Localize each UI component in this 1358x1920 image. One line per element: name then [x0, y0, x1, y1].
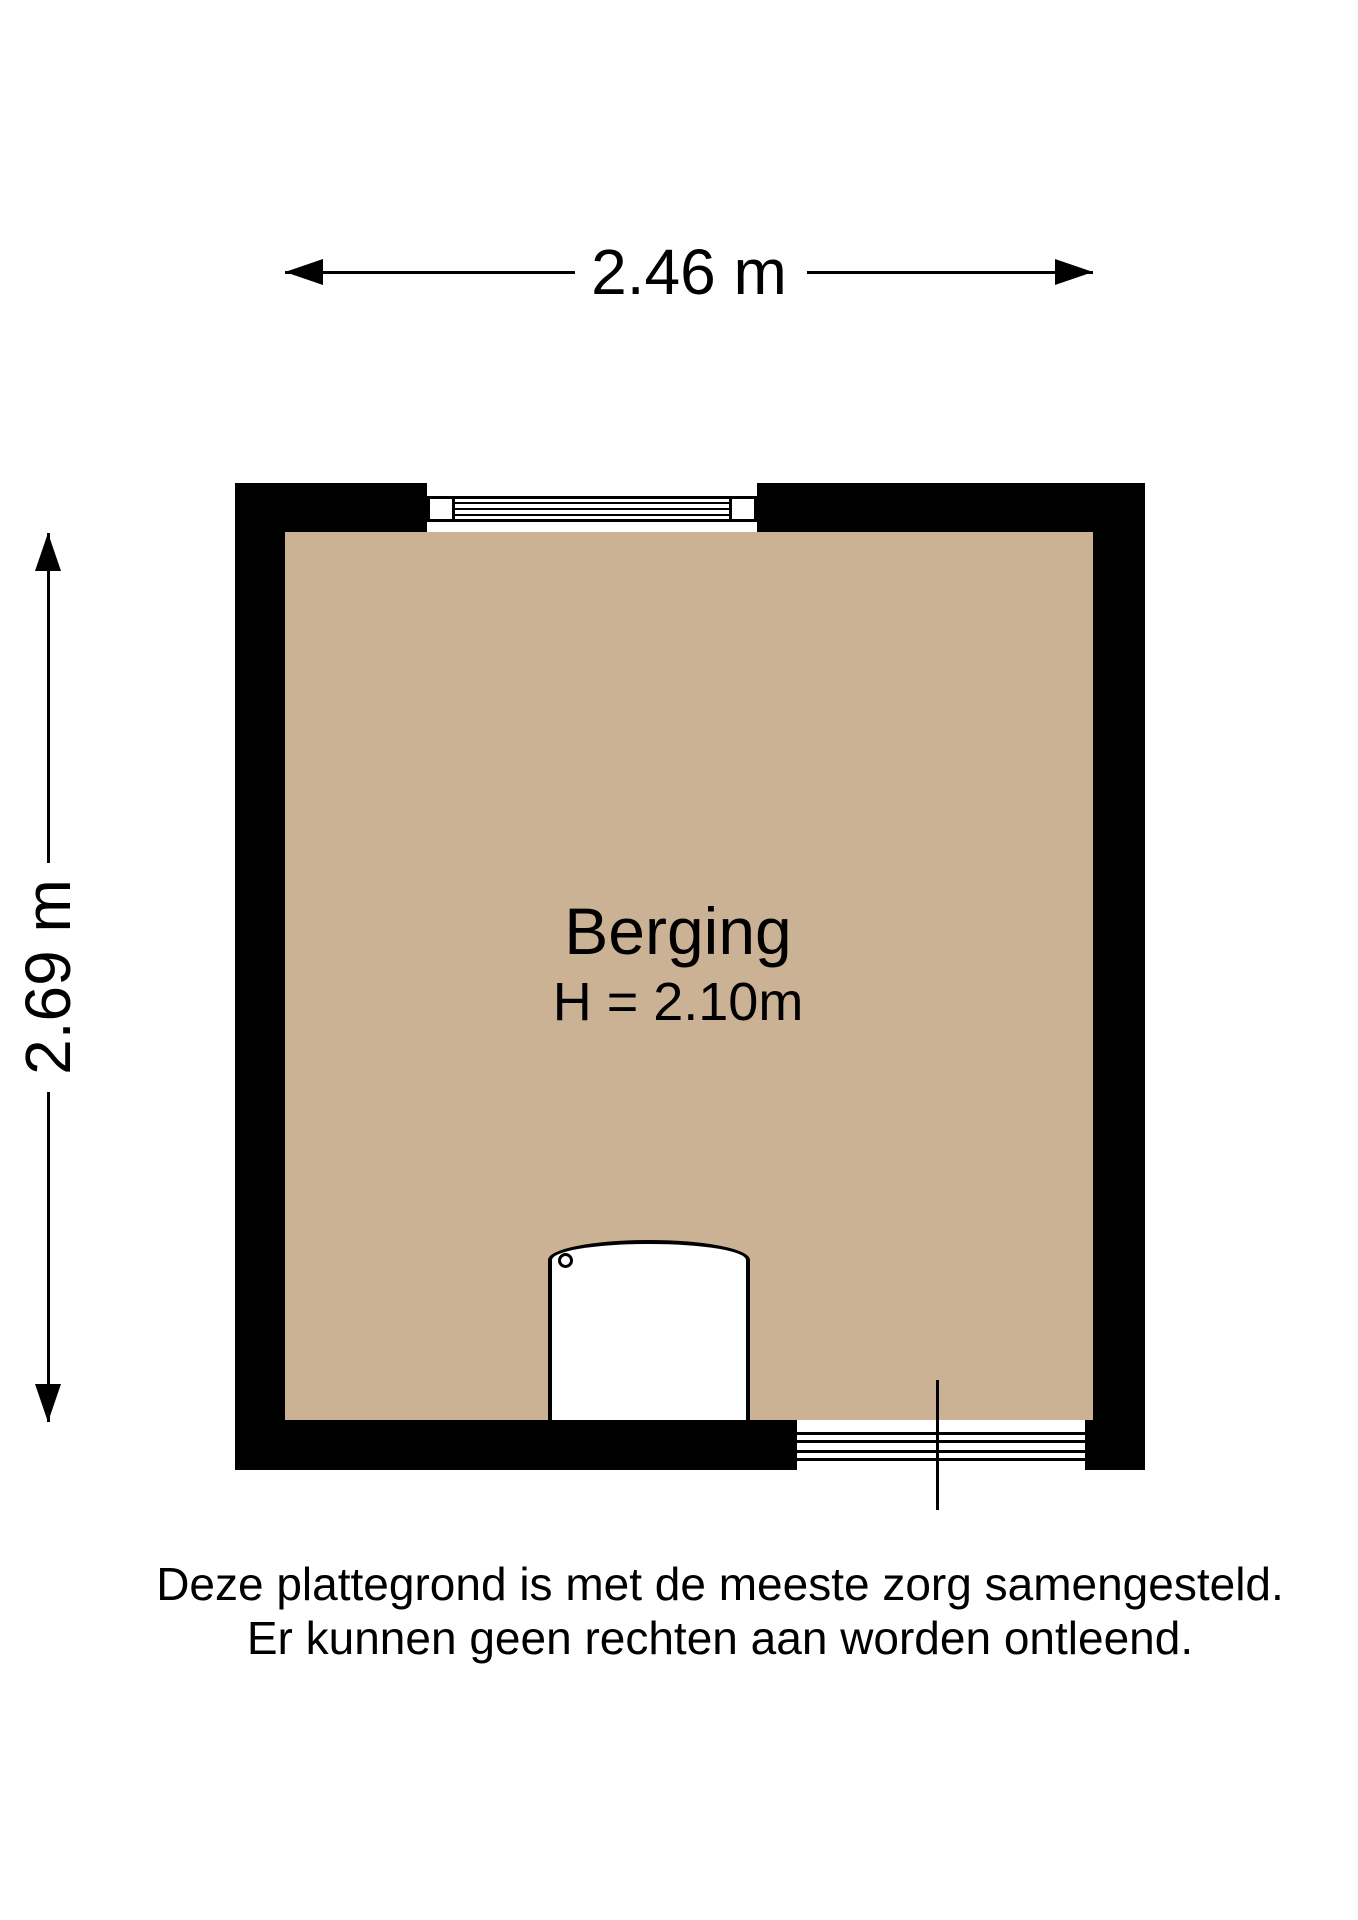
- door-icon: [936, 1380, 939, 1510]
- window-glass-line: [455, 502, 729, 504]
- boiler-icon: [548, 1240, 750, 1420]
- boiler-knob-icon: [558, 1253, 573, 1268]
- disclaimer-line1: Deze plattegrond is met de meeste zorg s…: [95, 1557, 1345, 1611]
- door-threshold-line: [797, 1450, 1085, 1453]
- door-threshold-line: [797, 1440, 1085, 1443]
- height-dimension-line: [47, 1092, 50, 1422]
- disclaimer-line2: Er kunnen geen rechten aan worden ontlee…: [95, 1611, 1345, 1665]
- room-label-block: Berging H = 2.10m: [478, 893, 878, 1035]
- door-threshold-line: [797, 1458, 1085, 1461]
- window-glass-line: [455, 514, 729, 516]
- height-dimension-label: 2.69 m: [13, 879, 83, 1075]
- height-dimension-line: [47, 533, 50, 863]
- window-mullion: [452, 496, 455, 522]
- room-ceiling-height: H = 2.10m: [478, 969, 878, 1035]
- width-dimension-label: 2.46 m: [539, 237, 839, 307]
- disclaimer: Deze plattegrond is met de meeste zorg s…: [95, 1557, 1345, 1665]
- window-mullion: [729, 496, 732, 522]
- door-threshold-line: [797, 1432, 1085, 1435]
- arrow-down-icon: [35, 1384, 61, 1422]
- window-glass-line: [455, 508, 729, 510]
- width-dimension-line: [807, 271, 1093, 274]
- room-name: Berging: [478, 893, 878, 969]
- arrow-right-icon: [1055, 259, 1093, 285]
- floorplan-canvas: 2.46 m 2.69 m Berging H = 2.10m Deze pla…: [0, 0, 1358, 1920]
- width-dimension-line: [285, 271, 575, 274]
- door-opening: [797, 1420, 1085, 1470]
